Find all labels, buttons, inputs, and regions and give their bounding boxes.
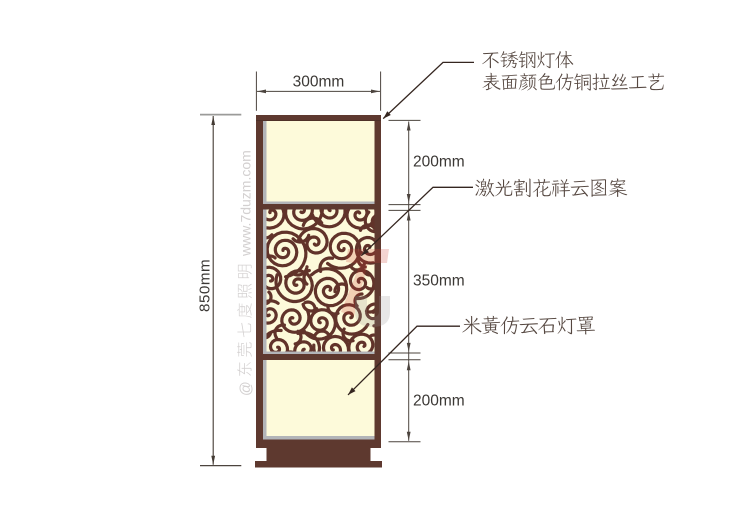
svg-text:200mm: 200mm	[413, 154, 465, 171]
svg-text:350mm: 350mm	[413, 273, 465, 290]
svg-text:www.7duzm.com: www.7duzm.com	[238, 150, 254, 257]
svg-text:200mm: 200mm	[413, 393, 465, 410]
svg-text:@: @	[239, 381, 255, 396]
svg-text:850mm: 850mm	[197, 259, 214, 312]
svg-text:300mm: 300mm	[293, 74, 345, 91]
